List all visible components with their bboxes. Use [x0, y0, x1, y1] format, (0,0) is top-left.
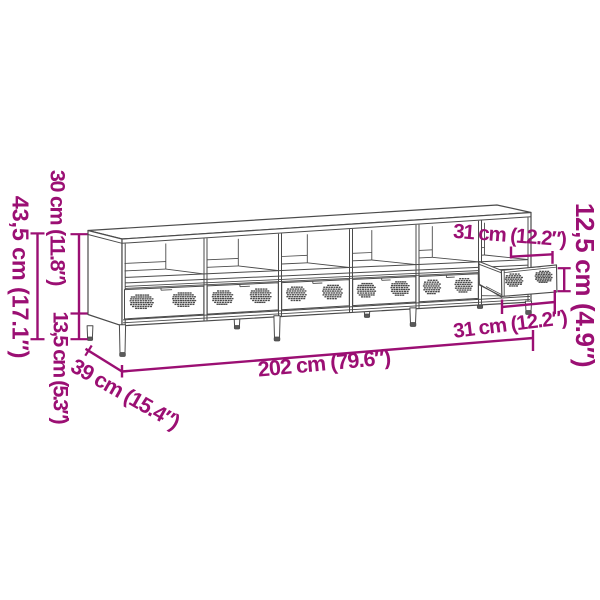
svg-text:30 cm (11.8″): 30 cm (11.8″) [46, 170, 70, 286]
svg-text:43,5 cm (17.1″): 43,5 cm (17.1″) [8, 196, 34, 358]
svg-text:13,5 cm (5.3″): 13,5 cm (5.3″) [49, 311, 73, 424]
svg-text:12,5 cm (4.9″): 12,5 cm (4.9″) [570, 203, 600, 367]
